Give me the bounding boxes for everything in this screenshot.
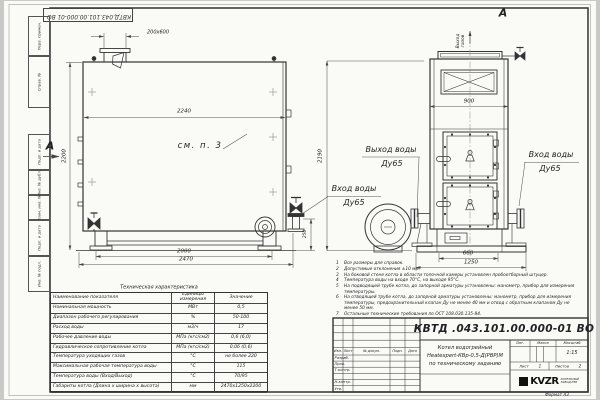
col-header-unit: Единицы измерения: [172, 293, 215, 304]
scale-value: 1:15: [566, 350, 577, 356]
tech-table-row: Габариты котла (Длина х ширина х высота)…: [51, 383, 267, 393]
note-number: 1: [336, 261, 344, 266]
manufacturer-logo: KVZR КОТЕЛЬНЫЙ ЗАВОД РЭП: [511, 371, 587, 391]
sheet-number: 1: [539, 364, 542, 369]
label-gas-outlet: Выход газов: [456, 34, 466, 49]
cell-name: Температура уходящих газов: [51, 353, 172, 363]
note-text: Все размеры для справок.: [344, 261, 404, 266]
label-water-outlet-dn: Ду65: [381, 160, 402, 168]
logo-subtext: КОТЕЛЬНЫЙ ЗАВОД РЭП: [561, 378, 579, 384]
tech-table-body: Номинальная мощность МВт 0,5 Диапазон ра…: [51, 304, 267, 393]
tech-table-row: Гидравлическое сопротивление котла МПа (…: [51, 344, 267, 354]
col-date: Дата: [408, 349, 417, 353]
cell-unit: мм: [172, 383, 215, 393]
dim-overall-length: 2470: [179, 257, 193, 263]
margin-cell-inv-podl: Инв. № подл.: [28, 256, 50, 292]
role-razrab: Разраб.: [335, 356, 350, 360]
dim-left-height: 2200: [62, 149, 68, 163]
note-number: 5: [336, 284, 344, 294]
note-number: 4: [336, 278, 344, 283]
title-block-designation: КВТД .043.101.00.000-01 ВО: [414, 323, 594, 335]
tech-table-row: Рабочее давление воды МПа (кгс/см2) 0,6 …: [51, 334, 267, 344]
view-label-a-top: А: [499, 8, 508, 19]
cell-value: 17: [215, 324, 267, 334]
cell-value: 50-100: [215, 314, 267, 324]
dim-flue: 200x600: [147, 30, 169, 35]
tech-table-header: Наименование показателя Единицы измерени…: [51, 293, 267, 304]
label-water-outlet: Выход воды: [366, 146, 417, 154]
cell-unit: °С: [172, 363, 215, 373]
label-water-inlet-left: Вход воды: [332, 185, 377, 193]
cell-value: 0,5: [215, 304, 267, 314]
cell-value: не более 220: [215, 353, 267, 363]
dim-front-height: 2190: [318, 149, 324, 163]
label-water-inlet-right: Вход воды: [529, 151, 574, 159]
note-text: Допустимые отклонения ±10 мм.: [344, 267, 420, 272]
tech-table: Наименование показателя Единицы измерени…: [50, 292, 268, 392]
role-prov: Пров.: [335, 362, 346, 366]
margin-cell-inv-dubl: Инв. № дубл.: [28, 170, 50, 195]
label-water-inlet-left-dn: Ду65: [343, 199, 364, 207]
logo-subtext-line2: ЗАВОД РЭП: [561, 381, 579, 384]
role-nkontr: Н.контр.: [335, 380, 352, 384]
product-name-line2: Heatexpert-КВр-0,5-Д(РВР)М: [427, 353, 503, 359]
cell-value: 0,6 (6,0): [215, 334, 267, 344]
dimension-lines: [43, 33, 579, 271]
tech-table-row: Температура воды (Вход/Выход) °С 70/95: [51, 373, 267, 383]
sheets-label: Листов: [555, 364, 569, 369]
front-view: [365, 31, 526, 256]
scale-header: Масштаб: [563, 341, 580, 345]
format-label: Формат А3: [545, 393, 569, 397]
note-item: 2 Допустимые отклонения ±10 мм.: [336, 267, 584, 272]
cell-unit: м3/ч: [172, 324, 215, 334]
cell-name: Номинальная мощность: [51, 304, 172, 314]
blower-fan: [365, 204, 411, 252]
note-item: 6 На отводящей трубе котла, до запорной …: [336, 295, 584, 311]
label-water-inlet-right-dn: Ду65: [539, 165, 560, 173]
note-number: 2: [336, 267, 344, 272]
sheets-total: 2: [579, 364, 582, 369]
note-item: 5 На подводящей трубе котла, до запорной…: [336, 284, 584, 294]
note-item: 7 Остальные технические требования по ОС…: [336, 312, 584, 317]
cell-name: Габариты котла (Длина х ширина х высота): [51, 383, 172, 393]
mass-header: Масса: [537, 341, 548, 345]
water-inlet-valve: [288, 198, 304, 232]
cell-name: Расход воды: [51, 324, 172, 334]
margin-cell-vzam-inv: Взам. инв. №: [28, 195, 50, 220]
margin-cell-perv-primen: Перв. примен.: [28, 16, 50, 56]
cell-unit: МПа (кгс/см2): [172, 344, 215, 354]
lit-header: Лит.: [516, 341, 524, 345]
cell-unit: МПа (кгс/см2): [172, 334, 215, 344]
note-number: 7: [336, 312, 344, 317]
logo-text: KVZR: [530, 376, 558, 387]
label-gas-outlet-l2: газов: [461, 35, 466, 48]
note-item: 1 Все размеры для справок.: [336, 261, 584, 266]
cell-name: Рабочее давление воды: [51, 334, 172, 344]
tech-table-row: Номинальная мощность МВт 0,5: [51, 304, 267, 314]
cell-value: 70/95: [215, 373, 267, 383]
dim-top-width: 2240: [177, 109, 191, 115]
cell-value: 115: [215, 363, 267, 373]
col-izm: Изм.: [334, 349, 342, 353]
tech-table-row: Максимальная рабочая температура воды °С…: [51, 363, 267, 373]
col-header-value: Значение: [215, 293, 267, 304]
col-doc: № докум.: [363, 349, 380, 353]
cell-name: Температура воды (Вход/Выход): [51, 373, 172, 383]
note-text: На подводящей трубе котла, до запорной а…: [344, 284, 584, 294]
tech-table-row: Расход воды м3/ч 17: [51, 324, 267, 334]
cell-unit: °С: [172, 373, 215, 383]
dim-support-span: 2000: [177, 249, 191, 255]
note-text: Температура воды на входе 70°С, на выход…: [344, 278, 460, 283]
drawing-sheet-page: { "sheet": { "designation": "КВТД.043.10…: [0, 0, 600, 400]
role-utv: Утв.: [335, 387, 343, 391]
notes-list: 1 Все размеры для справок. 2 Допустимые …: [336, 261, 584, 318]
cell-name: Максимальная рабочая температура воды: [51, 363, 172, 373]
dim-front-width: 900: [464, 99, 475, 105]
note-text: Остальные технические требования по ОСТ …: [344, 312, 481, 317]
cell-name: Гидравлическое сопротивление котла: [51, 344, 172, 354]
cell-name: Диапазон рабочего регулирования: [51, 314, 172, 324]
logo-mark: [519, 377, 528, 386]
cell-value: 0,06 (0,6): [215, 344, 267, 354]
cell-unit: МВт: [172, 304, 215, 314]
note-text: На отводящей трубе котла, до запорной ар…: [344, 295, 584, 311]
inverted-stamp-box: КВТД.043.101.00.000-01 ВО: [43, 8, 133, 22]
product-name-line1: Котел водогрейный: [438, 345, 492, 351]
tech-table-row: Диапазон рабочего регулирования % 50-100: [51, 314, 267, 324]
inverted-stamp-text: КВТД.043.101.00.000-01 ВО: [47, 12, 131, 18]
margin-cell-podp-data-2: Подп. и дата: [28, 220, 50, 256]
margin-cell-sprav-no: Справ. №: [28, 56, 50, 108]
role-tkontr: Т.контр.: [335, 368, 351, 372]
note-number: 6: [336, 295, 344, 311]
col-list: Лист: [344, 349, 353, 353]
dim-front-support-span: 660: [463, 251, 474, 257]
tech-table-title: Техническая характеристика: [120, 286, 198, 291]
cell-unit: °С: [172, 353, 215, 363]
col-sign: Подп.: [392, 349, 402, 353]
see-note-ref: см. п. 3: [178, 142, 223, 151]
cell-value: 2470х1250х2200: [215, 383, 267, 393]
col-header-name: Наименование показателя: [51, 293, 172, 304]
product-name-line3: по техническому заданию: [429, 361, 501, 367]
note-item: 4 Температура воды на входе 70°С, на вых…: [336, 278, 584, 283]
section-label-a-left: А: [46, 141, 55, 152]
dim-valve-height: 250: [304, 230, 309, 239]
tech-table-row: Температура уходящих газов °С не более 2…: [51, 353, 267, 363]
cell-unit: %: [172, 314, 215, 324]
sheet-label: Лист: [519, 364, 529, 369]
